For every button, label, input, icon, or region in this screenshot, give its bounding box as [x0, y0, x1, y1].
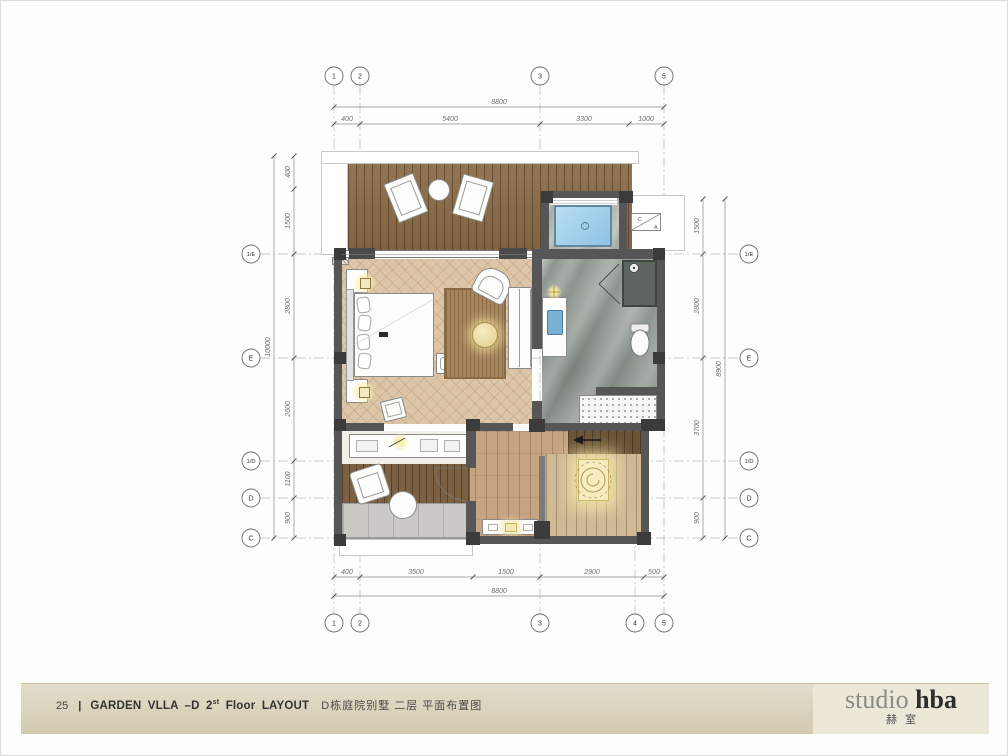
grid-bubble-label: 1	[332, 74, 336, 81]
stair-direction-arrow	[573, 436, 601, 445]
grid-bubble-label: 5	[662, 74, 666, 81]
grid-bubble-label: C	[746, 536, 751, 543]
grid-bubbles	[242, 67, 758, 632]
title-prefix: GARDEN VLLA –D 2	[90, 700, 212, 712]
dim-label: 2800	[285, 298, 292, 315]
grid-bubble-label: 5	[662, 621, 666, 628]
dim-right-overall: 8900	[716, 361, 723, 377]
balcony-door-swing	[435, 468, 468, 501]
grid-bubble-label: 2	[358, 621, 362, 628]
logo-chinese: 赫室	[813, 713, 989, 727]
grid-bubble-label: 1/E	[247, 252, 256, 258]
toilet	[631, 324, 649, 356]
grid-bubble-label: 1	[332, 621, 336, 628]
title-suffix: Floor LAYOUT	[226, 700, 310, 712]
grid-bubble-label: 1/E	[745, 252, 754, 258]
annotation-layer: 8800 400 5400 3300 1000 400 3500 1500 29…	[1, 1, 1008, 756]
dim-label: 900	[694, 512, 701, 524]
dim-label: 400	[341, 116, 353, 123]
dim-label: 900	[285, 512, 292, 524]
footer-title-block: 25 | GARDEN VLLA –D 2st Floor LAYOUT D栋庭…	[56, 697, 482, 713]
ac-label-right: A	[654, 225, 658, 231]
dimension-labels: 8800 400 5400 3300 1000 400 3500 1500 29…	[265, 99, 723, 595]
grid-bubble-labels: 1 2 3 5 1 2 3 4 5 1/E E 1/D D C 1/E E 1/…	[246, 74, 753, 628]
dimension-ticks	[272, 105, 728, 599]
title-divider: |	[78, 700, 81, 712]
pool-jet	[582, 223, 589, 230]
dim-label: 2900	[583, 569, 600, 576]
grid-bubble-label: 3	[538, 74, 542, 81]
dim-label: 1500	[694, 218, 701, 234]
dim-label: 1100	[285, 471, 292, 486]
grid-bubble-label: 4	[633, 621, 637, 628]
logo-wordmark: studio hba	[813, 686, 989, 713]
bed-cover-fold-line	[354, 299, 434, 345]
dim-label: 400	[285, 166, 292, 178]
dim-label: 500	[648, 569, 660, 576]
title-superscript: st	[213, 699, 220, 706]
dim-label: 1500	[498, 569, 514, 576]
desk-pen	[389, 438, 405, 447]
dimension-lines	[274, 107, 725, 596]
grid-bubble-label: 1/D	[246, 459, 255, 465]
dim-left-overall: 10000	[265, 337, 272, 357]
dim-label: 1500	[285, 213, 292, 229]
grid-bubble-label: D	[746, 496, 751, 503]
dim-label: 3700	[694, 420, 701, 436]
shower-drain	[630, 264, 639, 273]
grid-bubble-label: C	[248, 536, 253, 543]
dim-label: 2600	[285, 401, 292, 418]
ac-label-left: C	[638, 217, 642, 223]
footer-bar: 25 | GARDEN VLLA –D 2st Floor LAYOUT D栋庭…	[21, 683, 989, 734]
dim-bottom-overall: 8800	[491, 588, 507, 595]
shower-door-lines	[599, 264, 620, 304]
ac-unit-symbol: C A	[632, 214, 660, 231]
logo-hba: hba	[915, 685, 957, 714]
dim-label: 5400	[442, 116, 458, 123]
grid-bubble-label: 3	[538, 621, 542, 628]
grid-bubble-label: 1/D	[744, 459, 753, 465]
dim-top-overall: 8800	[491, 99, 507, 106]
dim-label: 1000	[638, 116, 654, 123]
dim-label: 3300	[576, 116, 592, 123]
grid-bubble-label: E	[249, 356, 254, 363]
grid-bubble-label: E	[747, 356, 752, 363]
logo-studio: studio	[845, 685, 909, 714]
grid-bubble-label: 2	[358, 74, 362, 81]
sheet-title-en: GARDEN VLLA –D 2st Floor LAYOUT	[90, 699, 309, 712]
dim-label: 3500	[408, 569, 424, 576]
dim-label: 2800	[694, 298, 701, 315]
vanity-light-sparkle-icon	[548, 286, 560, 298]
studio-hba-logo: studio hba 赫室	[813, 684, 989, 734]
page-number: 25	[56, 700, 68, 712]
grid-bubble-label: D	[248, 496, 253, 503]
drawing-sheet: 8800 400 5400 3300 1000 400 3500 1500 29…	[0, 0, 1008, 756]
pendant-light-symbol	[575, 462, 611, 498]
dim-label: 400	[341, 569, 353, 576]
sheet-title-cn: D栋庭院别墅 二层 平面布置图	[321, 697, 482, 713]
